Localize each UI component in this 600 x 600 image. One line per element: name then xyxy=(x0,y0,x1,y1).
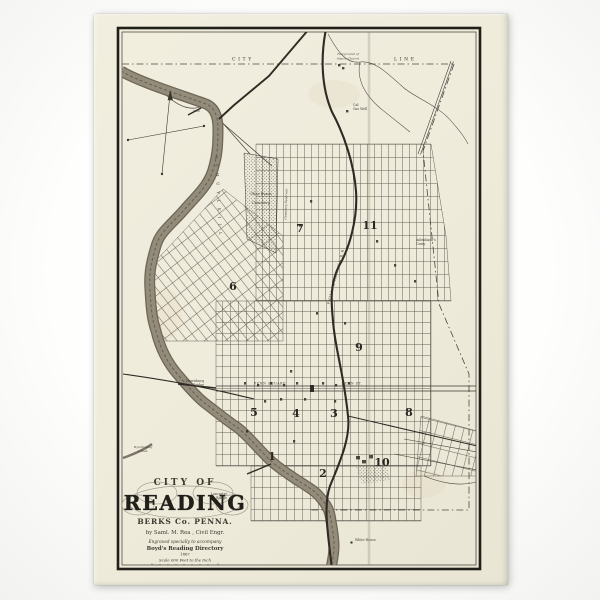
cartouche-subtitle: BERKS Co. PENNA. xyxy=(137,517,232,526)
street-grid-central xyxy=(216,301,431,521)
fairground-label: Fairground ofAlsace Church xyxy=(336,52,360,60)
penn-st-label: PENN ST. xyxy=(342,382,363,386)
ward-3: 3 xyxy=(330,407,338,420)
ward-9: 9 xyxy=(355,341,363,354)
ward-4: 4 xyxy=(292,407,300,420)
map-artwork: Chas Evans Cemetery Cemetery Reservoir S… xyxy=(94,14,508,585)
ward-8: 8 xyxy=(405,406,413,419)
ward-5: 5 xyxy=(250,406,258,419)
city-line-label-line: LINE xyxy=(394,57,417,63)
cartouche-title: READING xyxy=(124,491,247,515)
cartouche-engraved-line: Engraved specially to accompany xyxy=(148,540,223,545)
ward-2: 2 xyxy=(319,467,327,480)
gas-well-label: Cal.Gas Well xyxy=(353,103,367,111)
city-line-label-city: CITY xyxy=(232,57,254,63)
white-house-label: White House xyxy=(355,538,376,542)
title-cartouche: CITY OF READING BERKS Co. PENNA. by Saml… xyxy=(122,478,248,568)
cartouche-scale-text: Scale 600 Feet to the Inch xyxy=(159,558,211,563)
cemetery-label-line2: Cemetery xyxy=(252,201,271,205)
dam-label: Dam xyxy=(192,109,200,113)
cartouche-pretitle: CITY OF xyxy=(154,478,217,488)
photo-backdrop: Chas Evans Cemetery Cemetery Reservoir S… xyxy=(0,0,600,600)
ward-10: 10 xyxy=(374,456,390,469)
scale-bar xyxy=(152,564,218,568)
map-poster: Chas Evans Cemetery Cemetery Reservoir S… xyxy=(94,14,508,585)
cartouche-year: 1867 xyxy=(180,552,190,557)
white-house-mark xyxy=(351,542,353,544)
cemetery-label-line1: Chas Evans xyxy=(250,192,271,196)
railroad-branch-line xyxy=(219,29,309,119)
ward-7: 7 xyxy=(296,222,304,235)
ward-1: 1 xyxy=(268,450,276,463)
cartouche-byline: by Saml. M. Rea , Civil Engr. xyxy=(146,530,225,536)
ward-6: 6 xyxy=(229,280,237,293)
